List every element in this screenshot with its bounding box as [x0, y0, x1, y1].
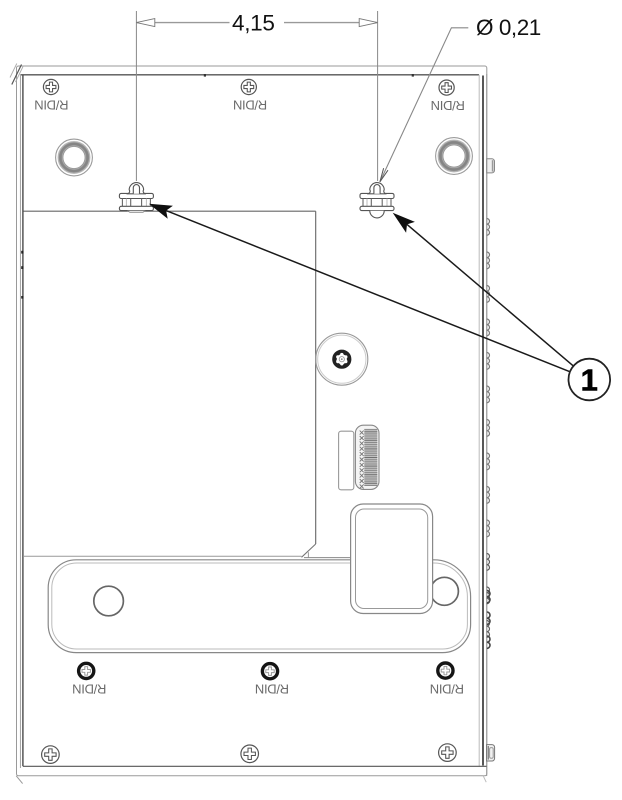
svg-text:R/DIN: R/DIN [72, 681, 106, 696]
svg-text:R/DIN: R/DIN [431, 98, 465, 113]
svg-text:1: 1 [581, 363, 598, 398]
svg-text:4,15: 4,15 [232, 10, 275, 35]
svg-text:Ø 0,21: Ø 0,21 [476, 15, 541, 40]
svg-text:R/DIN: R/DIN [255, 681, 289, 696]
svg-text:R/DIN: R/DIN [233, 98, 267, 113]
svg-text:R/DIN: R/DIN [35, 98, 69, 113]
svg-text:R/DIN: R/DIN [430, 681, 464, 696]
